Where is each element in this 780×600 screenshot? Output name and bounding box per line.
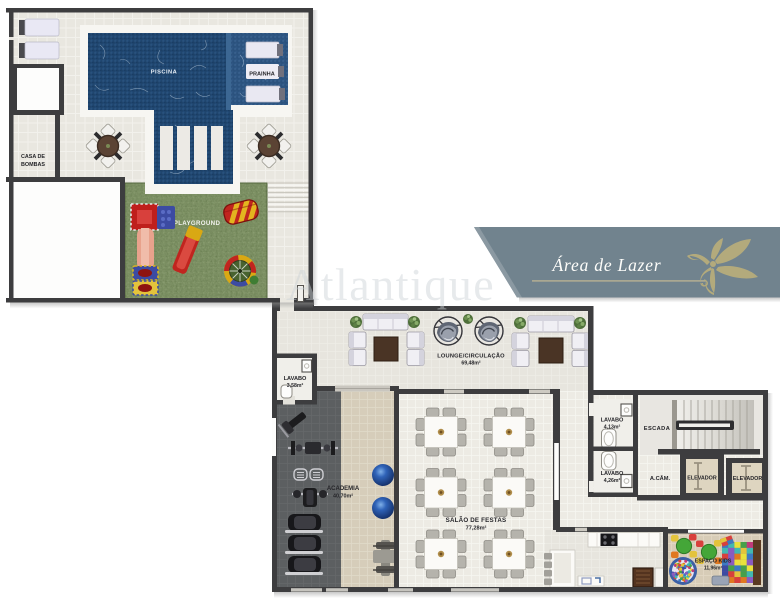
svg-text:A.CÂM.: A.CÂM. bbox=[650, 475, 671, 482]
svg-text:69,48m²: 69,48m² bbox=[461, 361, 481, 367]
svg-text:Atlantique: Atlantique bbox=[286, 259, 495, 310]
svg-text:LOUNGE/CIRCULAÇÃO: LOUNGE/CIRCULAÇÃO bbox=[437, 353, 505, 360]
svg-text:CASA DE: CASA DE bbox=[21, 154, 45, 160]
svg-text:4,26m²: 4,26m² bbox=[604, 478, 621, 484]
svg-text:77,28m²: 77,28m² bbox=[466, 525, 487, 532]
svg-text:ESPAÇO KIDS: ESPAÇO KIDS bbox=[695, 559, 732, 565]
svg-text:LAVABO: LAVABO bbox=[284, 376, 307, 382]
svg-text:PRAINHA: PRAINHA bbox=[249, 72, 274, 78]
svg-text:BOMBAS: BOMBAS bbox=[21, 162, 45, 168]
svg-text:ELEVADOR: ELEVADOR bbox=[733, 476, 763, 482]
svg-text:PLAYGROUND: PLAYGROUND bbox=[174, 220, 221, 227]
svg-text:ESCADA: ESCADA bbox=[644, 426, 670, 432]
svg-text:LAVABO: LAVABO bbox=[601, 418, 624, 424]
svg-text:LAVABO: LAVABO bbox=[601, 471, 624, 477]
svg-text:ELEVADOR: ELEVADOR bbox=[687, 476, 717, 482]
svg-text:SALÃO DE FESTAS: SALÃO DE FESTAS bbox=[446, 517, 507, 524]
svg-text:PISCINA: PISCINA bbox=[151, 70, 178, 76]
svg-text:Área de Lazer: Área de Lazer bbox=[552, 255, 662, 275]
svg-text:3,58m²: 3,58m² bbox=[287, 383, 304, 389]
svg-text:11,96m²: 11,96m² bbox=[704, 566, 723, 572]
svg-text:40,70m²: 40,70m² bbox=[333, 494, 353, 500]
svg-text:ACADEMIA: ACADEMIA bbox=[327, 486, 360, 492]
svg-text:4,13m²: 4,13m² bbox=[604, 425, 621, 431]
